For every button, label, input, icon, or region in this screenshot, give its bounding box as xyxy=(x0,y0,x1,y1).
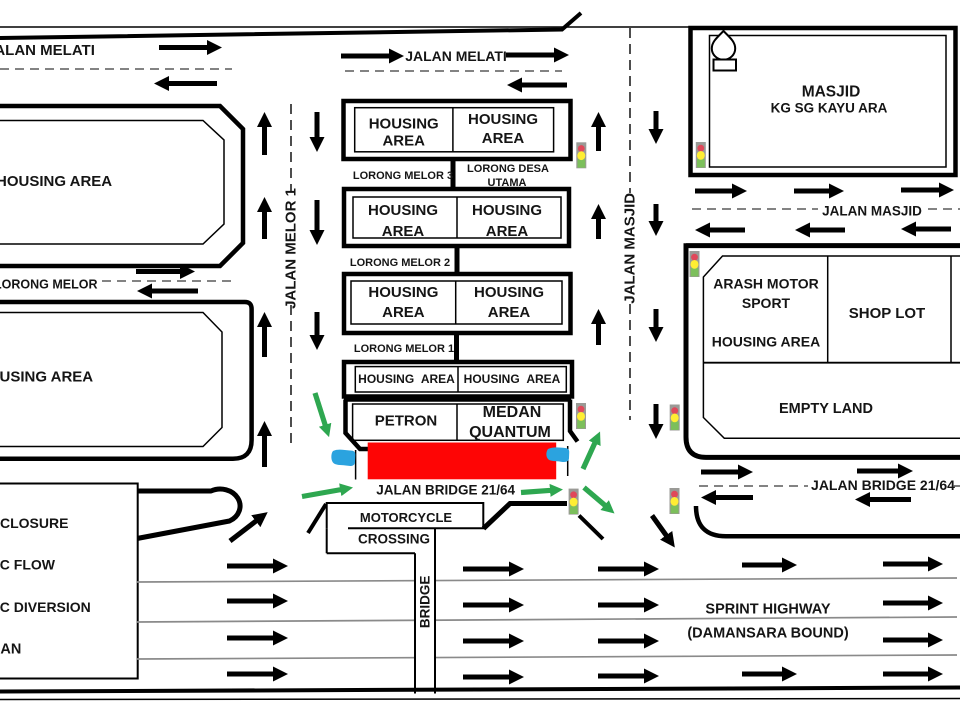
svg-text:HOUSING: HOUSING xyxy=(368,202,438,219)
svg-text:AREA: AREA xyxy=(382,223,425,240)
svg-text:TRAFFIC DIVERSION: TRAFFIC DIVERSION xyxy=(0,599,91,615)
svg-text:HOUSING: HOUSING xyxy=(472,202,542,219)
svg-text:EMPTY LAND: EMPTY LAND xyxy=(779,401,873,417)
svg-text:LORONG MELOR 3: LORONG MELOR 3 xyxy=(353,170,453,182)
svg-text:HOUSING: HOUSING xyxy=(369,115,439,132)
svg-text:HOUSING: HOUSING xyxy=(368,284,438,301)
svg-text:AREA: AREA xyxy=(482,130,525,147)
svg-text:BRIDGE: BRIDGE xyxy=(418,576,433,629)
svg-text:KG SG KAYU ARA: KG SG KAYU ARA xyxy=(771,101,888,116)
svg-text:JALAN: JALAN xyxy=(0,642,21,658)
svg-text:MOTORCYCLE: MOTORCYCLE xyxy=(360,510,453,525)
svg-text:JALAN BRIDGE 21/64: JALAN BRIDGE 21/64 xyxy=(376,482,515,497)
svg-text:MEDAN: MEDAN xyxy=(483,404,542,421)
svg-text:JALAN MELATI: JALAN MELATI xyxy=(0,42,95,59)
svg-text:SHOP LOT: SHOP LOT xyxy=(849,305,925,322)
svg-text:SPRINT HIGHWAY: SPRINT HIGHWAY xyxy=(705,602,830,618)
svg-text:CROSSING: CROSSING xyxy=(358,531,430,546)
svg-text:JALAN MASJID: JALAN MASJID xyxy=(822,203,922,218)
svg-text:HOUSING: HOUSING xyxy=(474,284,544,301)
svg-text:LORONG MELOR 2: LORONG MELOR 2 xyxy=(350,257,450,269)
svg-text:AREA: AREA xyxy=(382,304,425,321)
svg-text:HOUSING AREA: HOUSING AREA xyxy=(712,333,820,349)
svg-text:LORONG MELOR 1: LORONG MELOR 1 xyxy=(354,343,454,355)
svg-text:(DAMANSARA BOUND): (DAMANSARA BOUND) xyxy=(687,625,849,641)
svg-text:HOUSING AREA: HOUSING AREA xyxy=(358,372,455,386)
svg-text:PETRON: PETRON xyxy=(375,412,438,429)
svg-text:LORONG MELOR: LORONG MELOR xyxy=(0,278,97,292)
svg-text:SPORT: SPORT xyxy=(742,295,791,311)
svg-text:JALAN MASJID: JALAN MASJID xyxy=(622,193,639,304)
svg-text:HOUSING AREA: HOUSING AREA xyxy=(0,173,112,190)
svg-text:MASJID: MASJID xyxy=(802,84,861,101)
svg-text:JALAN MELATI: JALAN MELATI xyxy=(405,48,507,64)
svg-text:TRAFFIC FLOW: TRAFFIC FLOW xyxy=(0,556,56,572)
svg-text:AREA: AREA xyxy=(488,304,531,321)
svg-text:AREA: AREA xyxy=(382,132,425,149)
svg-text:HOUSING: HOUSING xyxy=(468,111,538,128)
svg-text:QUANTUM: QUANTUM xyxy=(469,424,551,441)
svg-text:LORONG DESA: LORONG DESA xyxy=(467,163,549,175)
svg-text:JALAN MELOR 1: JALAN MELOR 1 xyxy=(283,188,300,309)
svg-text:HOUSING AREA: HOUSING AREA xyxy=(464,372,561,386)
svg-text:AREA: AREA xyxy=(486,223,529,240)
svg-text:JALAN BRIDGE 21/64: JALAN BRIDGE 21/64 xyxy=(811,477,955,493)
svg-text:CLOSURE: CLOSURE xyxy=(0,515,68,531)
svg-text:ARASH MOTOR: ARASH MOTOR xyxy=(713,275,819,291)
svg-text:HOUSING AREA: HOUSING AREA xyxy=(0,369,93,386)
